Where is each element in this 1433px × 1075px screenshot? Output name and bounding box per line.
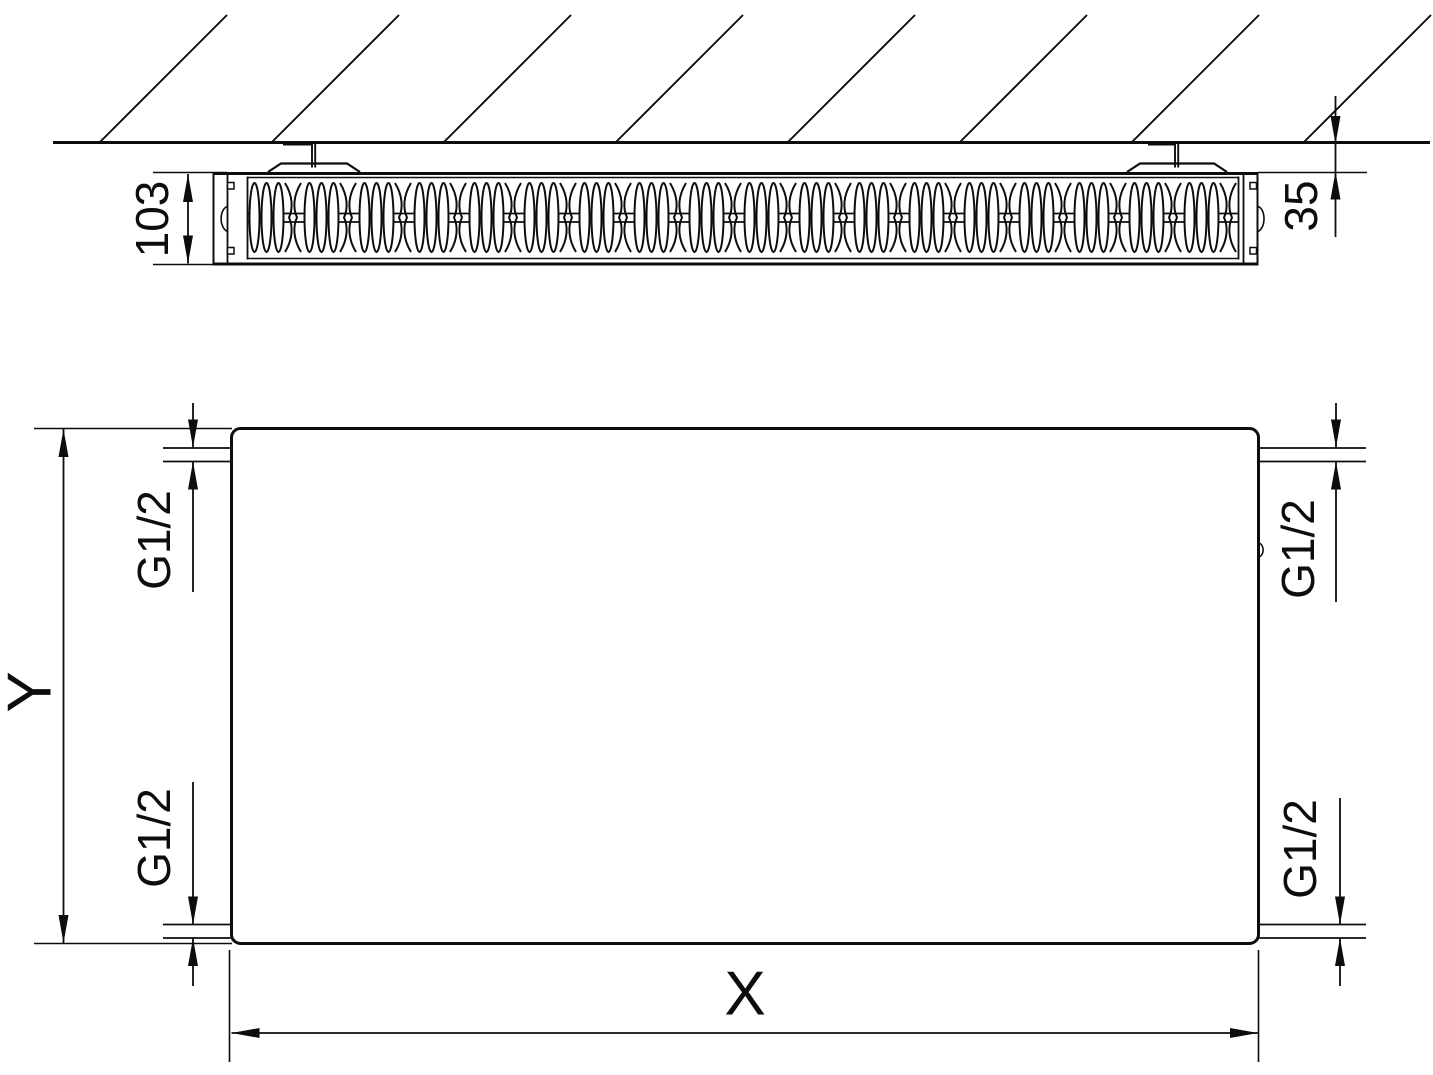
top-view: 103 35: [53, 15, 1431, 266]
connection-stub-top-right: [1260, 448, 1367, 462]
connection-label-top-right: G1/2: [1272, 499, 1324, 599]
end-cap-right: [1239, 172, 1265, 266]
connection-dimension-top-right: [1331, 403, 1341, 602]
connection-label-top-left: G1/2: [128, 490, 180, 590]
radiator-panel: [232, 429, 1259, 944]
drawing-canvas: 103 35: [0, 0, 1433, 1075]
wall-gap-label: 35: [1275, 180, 1327, 231]
height-label: Y: [0, 671, 65, 712]
connection-label-bottom-left: G1/2: [128, 788, 180, 888]
convector-fins: [248, 181, 1238, 254]
connection-dimension-bottom-right: [1335, 798, 1345, 986]
front-view: Y X G1/2 G1/2: [0, 403, 1366, 1062]
wall-hatching: [53, 15, 1431, 143]
end-cap-left: [214, 172, 248, 266]
connection-label-bottom-right: G1/2: [1274, 799, 1326, 899]
width-label: X: [724, 960, 765, 1029]
mounting-bracket-right: [1127, 144, 1227, 172]
radiator-section: [213, 172, 1264, 266]
connection-stub-top-left: [163, 448, 231, 462]
connection-stub-bottom-right: [1260, 925, 1367, 939]
depth-label: 103: [126, 181, 178, 258]
connection-dimension-top-left: [188, 403, 198, 592]
radiator-technical-drawing: 103 35: [0, 0, 1433, 1075]
mounting-bracket-left: [268, 144, 360, 172]
connection-stub-bottom-left: [163, 925, 231, 939]
connection-dimension-bottom-left: [188, 782, 198, 986]
